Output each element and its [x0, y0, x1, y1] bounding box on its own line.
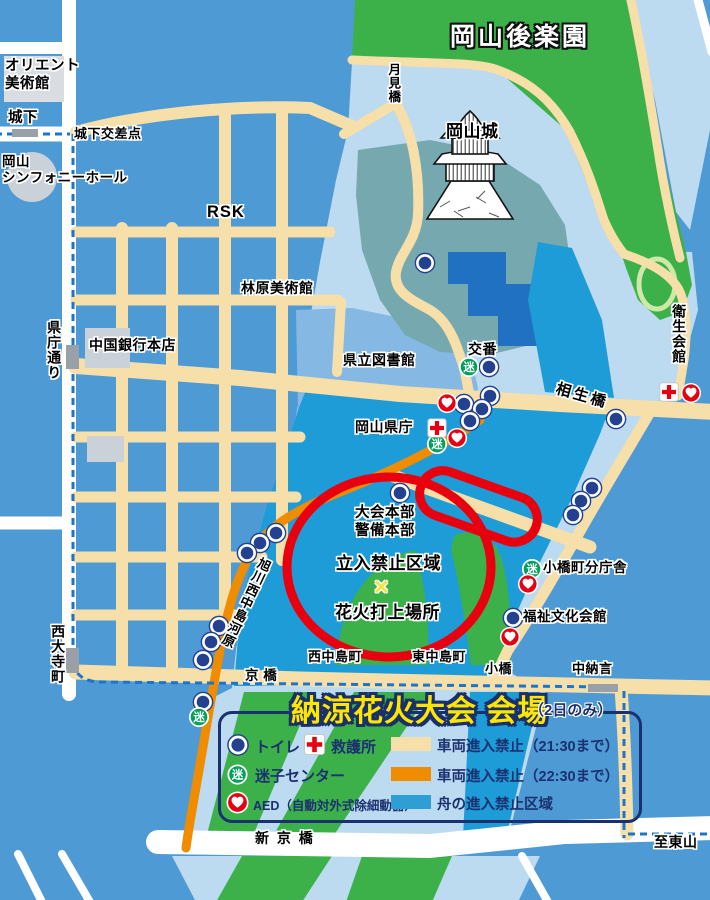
legend-label-no-boats: 舟の進入禁止区域 — [437, 793, 553, 814]
label-saidaiji-cho: 西大寺町 — [49, 624, 66, 684]
aed-heart-icon — [518, 574, 538, 594]
toilet-icon — [237, 543, 256, 562]
toilet-icon — [606, 409, 625, 428]
label-kobashi: 小橋 — [485, 661, 512, 677]
aed-heart-icon — [437, 393, 457, 413]
toilet-icon — [415, 253, 434, 272]
label-hayashibara-museum: 林原美術館 — [241, 280, 314, 297]
label-kyobashi: 京 橋 — [245, 668, 277, 684]
legend-label-no-vehicles-2230: 車両進入禁止（22:30まで） — [437, 765, 619, 786]
toilet-icon — [563, 505, 582, 524]
launch-x-mark: × — [374, 572, 389, 603]
label-launch-site: 花火打上場所 — [335, 603, 440, 624]
toilet-icon — [460, 411, 479, 430]
tram-stop-shiroshita — [12, 129, 38, 137]
first-aid-cross-icon — [428, 419, 446, 437]
label-kencho-dori: 県庁通り — [45, 320, 62, 380]
aed-heart-icon — [226, 791, 249, 814]
lost-child-icon — [227, 764, 248, 785]
toilet-icon — [390, 483, 409, 502]
toilet-icon — [503, 608, 522, 627]
aed-heart-icon — [447, 428, 467, 448]
label-shiroshita: 城下 — [8, 110, 38, 128]
label-shinkyobashi: 新 京 橋 — [255, 830, 315, 847]
lost-child-icon — [460, 358, 478, 376]
aed-heart-icon — [681, 383, 701, 403]
first-aid-cross-icon — [660, 383, 678, 401]
tram-stop-kencho-dori — [66, 345, 79, 369]
label-tsukimibashi: 月見橋 — [385, 63, 400, 104]
legend-label-no-vehicles-2130: 車両進入禁止（21:30まで） — [437, 735, 619, 756]
label-pref-library: 県立図書館 — [343, 352, 416, 369]
legend-swatch-2230 — [391, 767, 431, 781]
legend-note: （2日のみ） — [529, 699, 612, 720]
label-higashinakajima: 東中島町 — [412, 649, 466, 665]
legend-label-lost-child: 迷子センター — [255, 765, 345, 786]
label-pref-office: 岡山県庁 — [355, 419, 413, 436]
festival-map: 迷 — [0, 0, 710, 900]
toilet-icon — [227, 734, 249, 756]
legend-title: 納涼花火大会 会場 — [291, 686, 548, 730]
label-orient-museum: オリエント 美術館 — [5, 58, 80, 93]
label-koban: 交番 — [468, 341, 497, 358]
label-eisei-kaikan: 衛生会館 — [670, 304, 687, 364]
tram-stop-saidaiji-cho — [66, 648, 79, 673]
legend-swatch-no-boats — [391, 795, 431, 809]
label-to-higashiyama: 至東山 — [654, 834, 698, 851]
lost-child-icon — [190, 708, 208, 726]
label-korakuen: 岡山後楽園 — [450, 22, 590, 53]
label-chugoku-bank: 中国銀行本店 — [89, 337, 176, 354]
label-fukushi-kaikan: 福祉文化会館 — [523, 609, 607, 625]
label-nishinakajima: 西中島町 — [308, 649, 362, 665]
toilet-icon — [479, 357, 498, 376]
legend-label-toilet: トイレ — [255, 736, 300, 757]
label-symphony-hall: 岡山 シンフォニーホール — [2, 154, 128, 187]
toilet-icon — [193, 650, 212, 669]
label-hq: 大会本部 警備本部 — [355, 505, 415, 540]
tram-stop-chunagon — [588, 684, 618, 692]
label-okayama-castle: 岡山城 — [446, 122, 499, 143]
label-shiroshita-crossing: 城下交差点 — [74, 126, 142, 142]
legend-label-first-aid: 救護所 — [331, 736, 376, 757]
first-aid-cross-icon — [303, 733, 326, 756]
label-chunagon: 中納言 — [572, 661, 613, 677]
aed-heart-icon — [500, 627, 520, 647]
legend-swatch-2130 — [391, 737, 431, 751]
label-rsk: RSK — [207, 202, 245, 222]
label-kobashicho-branch: 小橋町分庁舎 — [543, 560, 627, 576]
